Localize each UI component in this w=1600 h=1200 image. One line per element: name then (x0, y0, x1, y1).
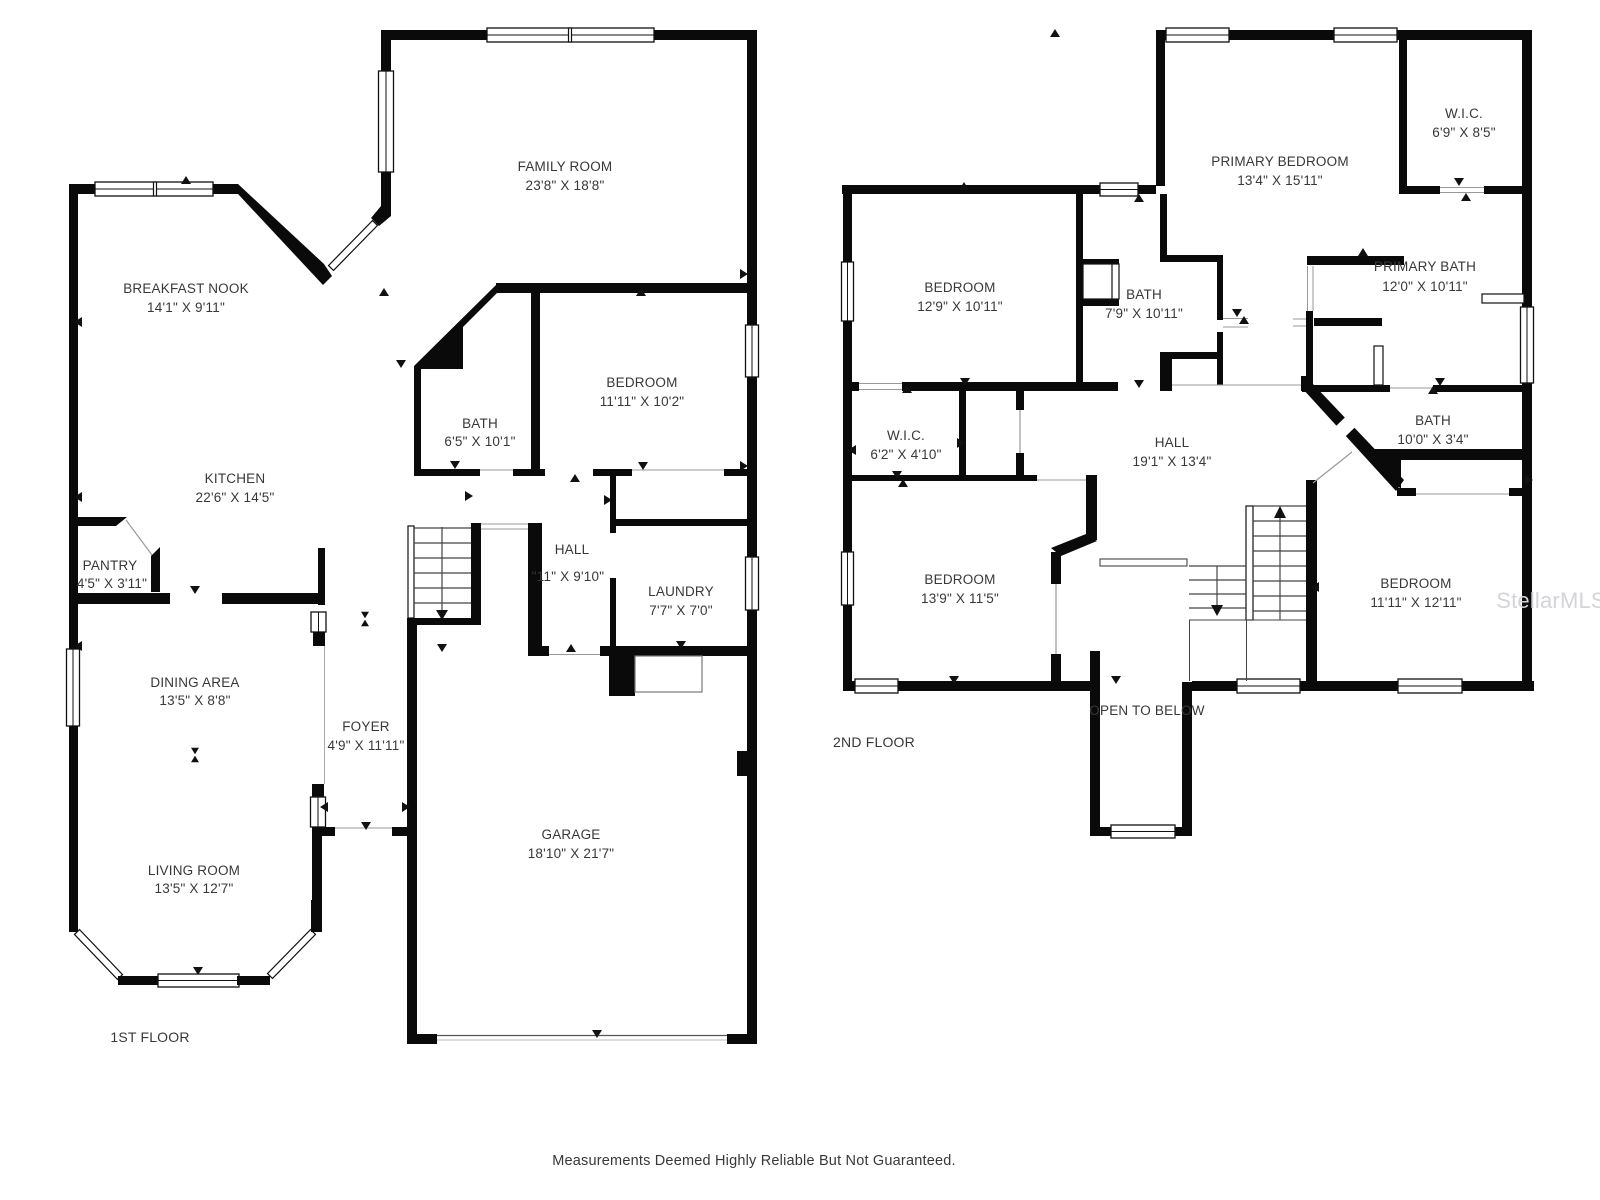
svg-text:12'0" X 10'11": 12'0" X 10'11" (1382, 279, 1468, 294)
svg-text:W.I.C.: W.I.C. (1445, 106, 1483, 121)
svg-text:BATH: BATH (462, 416, 498, 431)
svg-text:11'11" X 10'2": 11'11" X 10'2" (600, 394, 685, 409)
svg-text:StellarMLS: StellarMLS (1496, 588, 1600, 613)
svg-text:23'8" X 18'8": 23'8" X 18'8" (526, 178, 605, 193)
svg-text:6'9" X 8'5": 6'9" X 8'5" (1432, 125, 1495, 140)
svg-text:10'0" X 3'4": 10'0" X 3'4" (1397, 432, 1468, 447)
svg-text:7'7" X 7'0": 7'7" X 7'0" (649, 603, 712, 618)
svg-text:Measurements Deemed Highly Rel: Measurements Deemed Highly Reliable But … (552, 1153, 956, 1169)
svg-text:BEDROOM: BEDROOM (1380, 576, 1451, 591)
svg-text:7'9" X 10'11": 7'9" X 10'11" (1105, 306, 1183, 321)
svg-text:11'11" X 12'11": 11'11" X 12'11" (1370, 595, 1461, 610)
svg-text:13'4" X 15'11": 13'4" X 15'11" (1237, 173, 1323, 188)
svg-text:"11" X 9'10": "11" X 9'10" (532, 569, 604, 584)
svg-text:1ST FLOOR: 1ST FLOOR (110, 1029, 189, 1045)
svg-text:HALL: HALL (555, 542, 590, 557)
svg-text:OPEN TO BELOW: OPEN TO BELOW (1089, 703, 1204, 718)
svg-text:BEDROOM: BEDROOM (924, 572, 995, 587)
svg-text:4'5" X 3'11": 4'5" X 3'11" (77, 576, 147, 591)
svg-text:LIVING ROOM: LIVING ROOM (148, 863, 240, 878)
svg-text:19'1" X 13'4": 19'1" X 13'4" (1133, 454, 1212, 469)
svg-text:13'9" X 11'5": 13'9" X 11'5" (921, 591, 999, 606)
svg-text:PANTRY: PANTRY (83, 558, 138, 573)
svg-text:BEDROOM: BEDROOM (924, 280, 995, 295)
svg-text:FAMILY ROOM: FAMILY ROOM (518, 159, 613, 174)
svg-text:KITCHEN: KITCHEN (205, 471, 266, 486)
svg-text:6'2" X 4'10": 6'2" X 4'10" (870, 447, 941, 462)
svg-text:BEDROOM: BEDROOM (606, 375, 677, 390)
svg-text:W.I.C.: W.I.C. (887, 428, 925, 443)
svg-text:13'5" X 8'8": 13'5" X 8'8" (159, 693, 230, 708)
svg-text:13'5" X 12'7": 13'5" X 12'7" (155, 881, 234, 896)
svg-text:22'6" X 14'5": 22'6" X 14'5" (196, 490, 275, 505)
svg-text:6'5" X 10'1": 6'5" X 10'1" (444, 434, 515, 449)
svg-text:BATH: BATH (1415, 413, 1451, 428)
svg-text:PRIMARY BEDROOM: PRIMARY BEDROOM (1211, 154, 1349, 169)
svg-text:LAUNDRY: LAUNDRY (648, 584, 714, 599)
svg-text:4'9" X 11'11": 4'9" X 11'11" (328, 738, 405, 753)
svg-text:BATH: BATH (1126, 287, 1162, 302)
svg-text:18'10" X 21'7": 18'10" X 21'7" (528, 846, 615, 861)
svg-text:DINING AREA: DINING AREA (150, 675, 239, 690)
svg-text:14'1" X 9'11": 14'1" X 9'11" (147, 300, 225, 315)
svg-text:PRIMARY BATH: PRIMARY BATH (1374, 259, 1476, 274)
svg-text:FOYER: FOYER (342, 719, 390, 734)
svg-text:2ND FLOOR: 2ND FLOOR (833, 734, 915, 750)
svg-text:12'9" X 10'11": 12'9" X 10'11" (917, 299, 1003, 314)
svg-text:BREAKFAST NOOK: BREAKFAST NOOK (123, 281, 249, 296)
svg-text:HALL: HALL (1155, 435, 1190, 450)
svg-text:GARAGE: GARAGE (542, 827, 601, 842)
